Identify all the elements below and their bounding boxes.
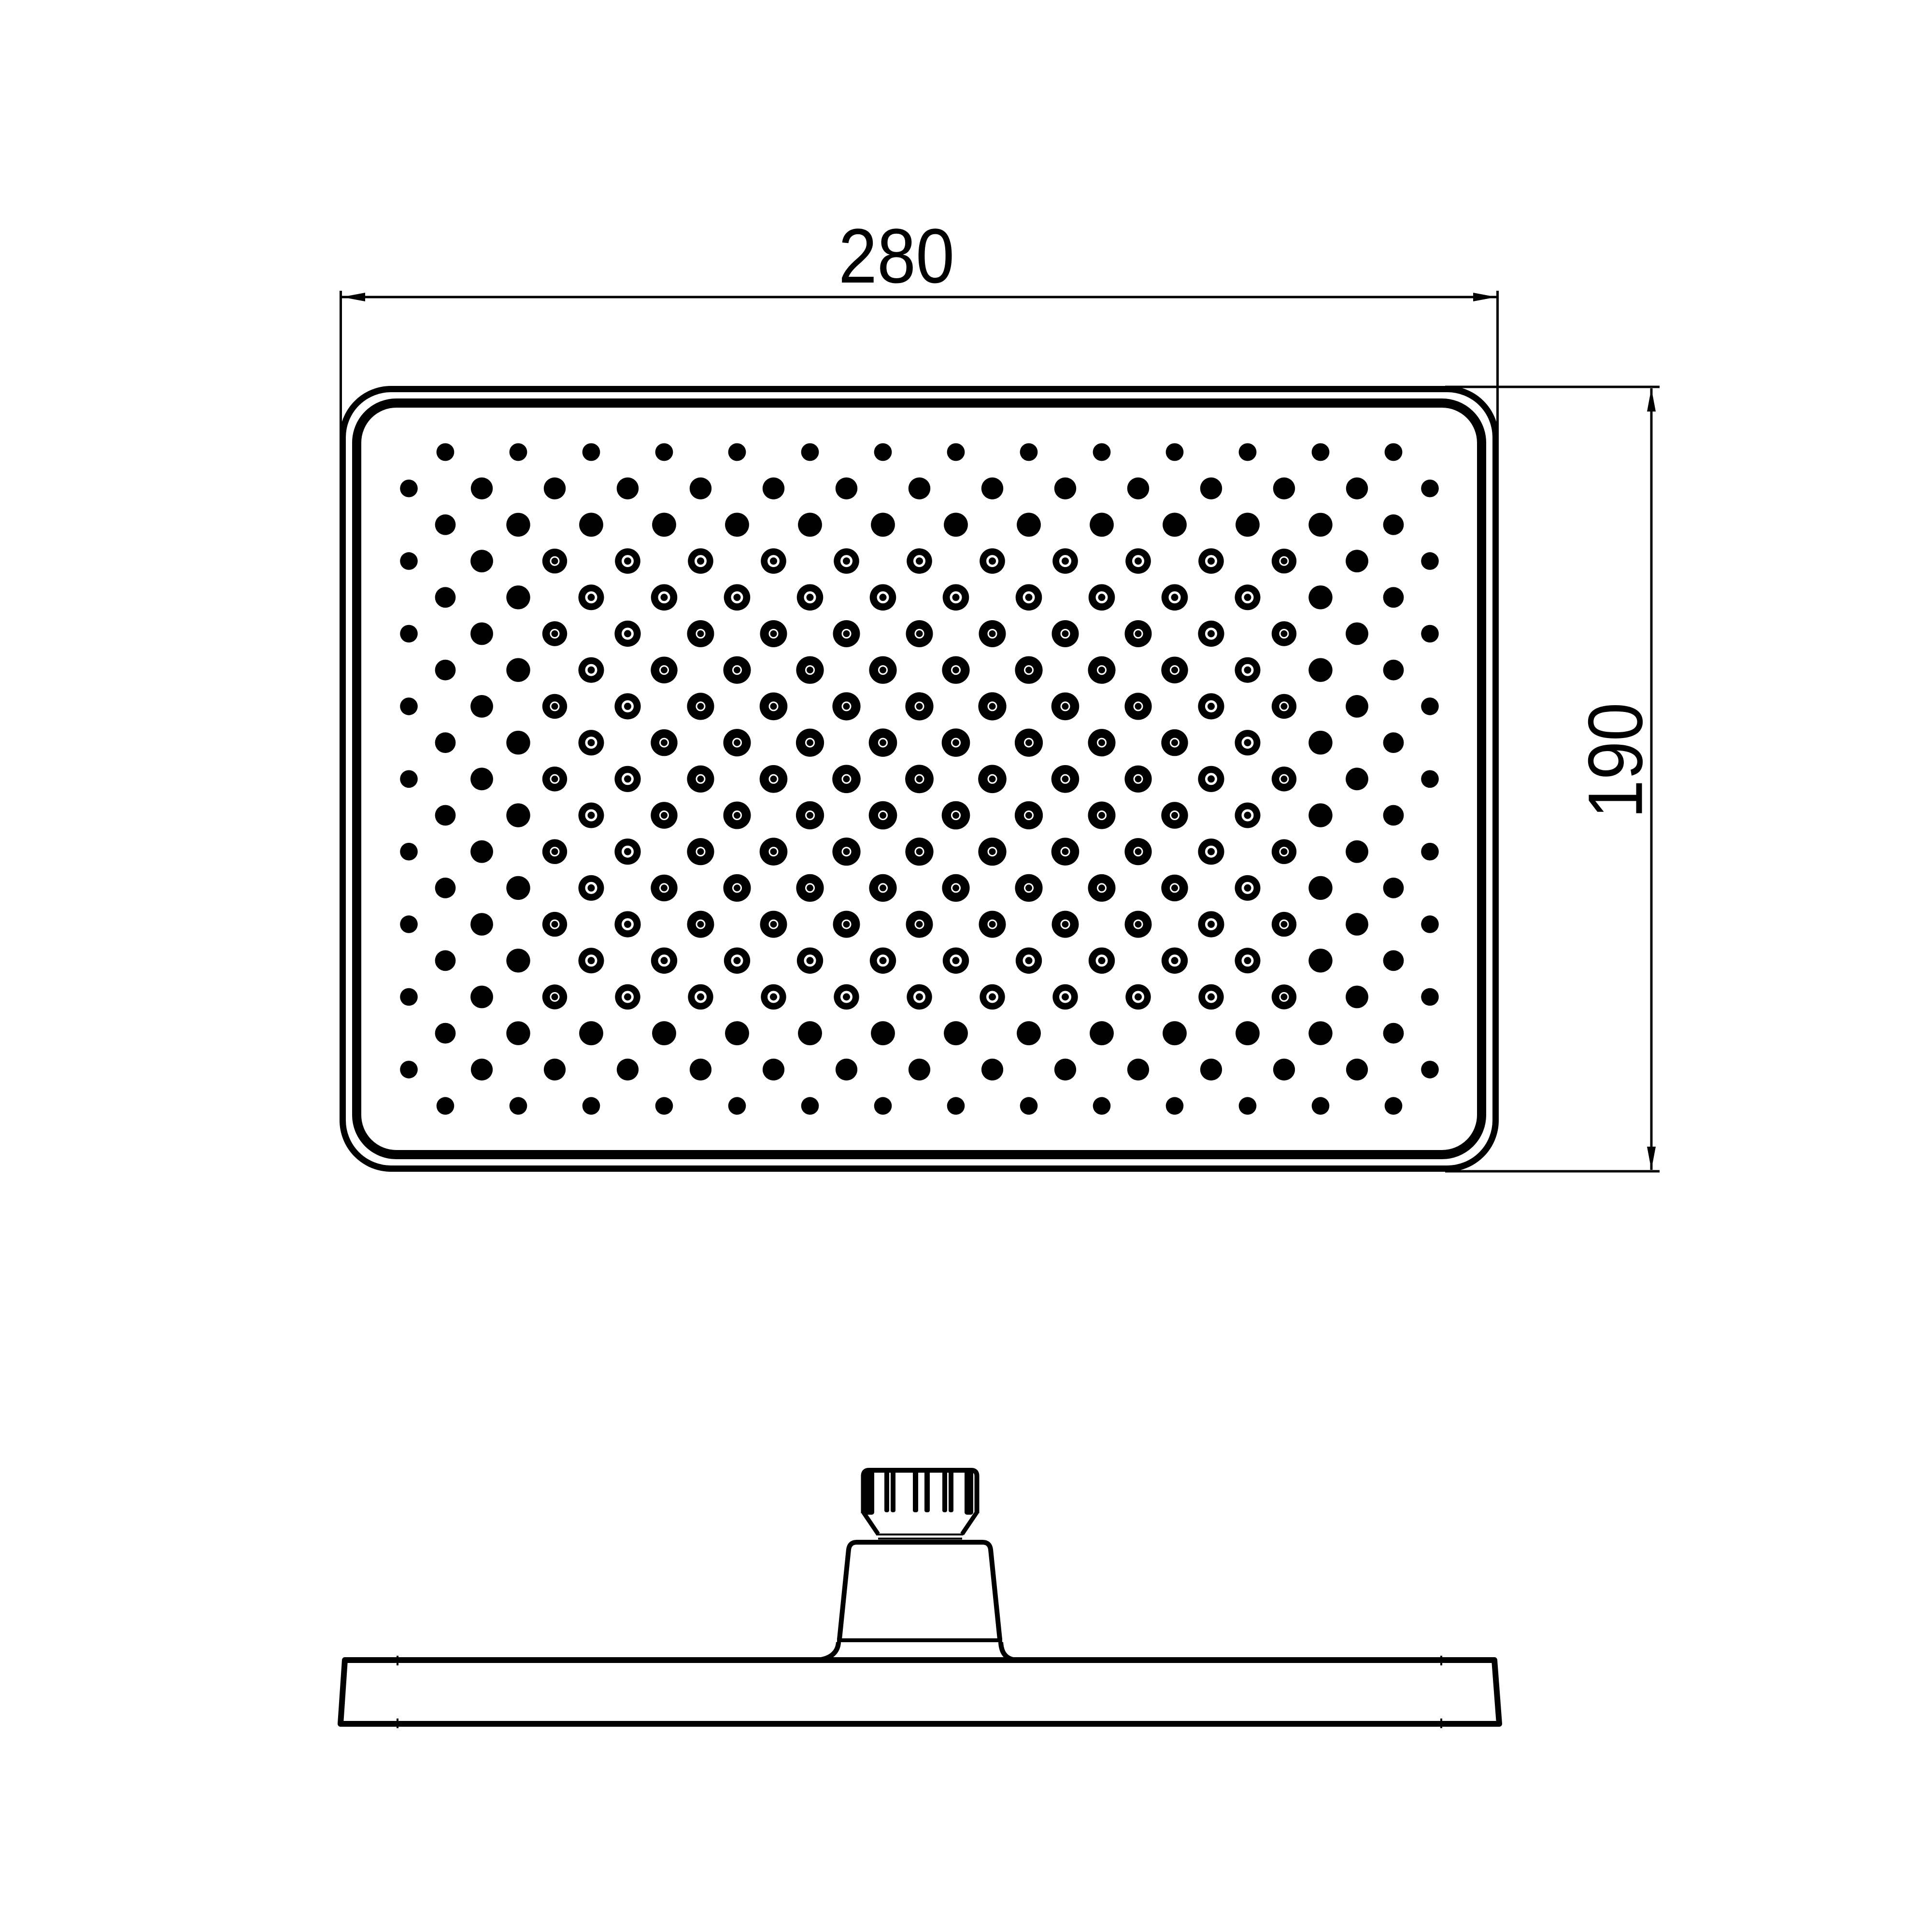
svg-text:280: 280	[838, 213, 954, 299]
svg-text:190: 190	[1572, 702, 1659, 818]
